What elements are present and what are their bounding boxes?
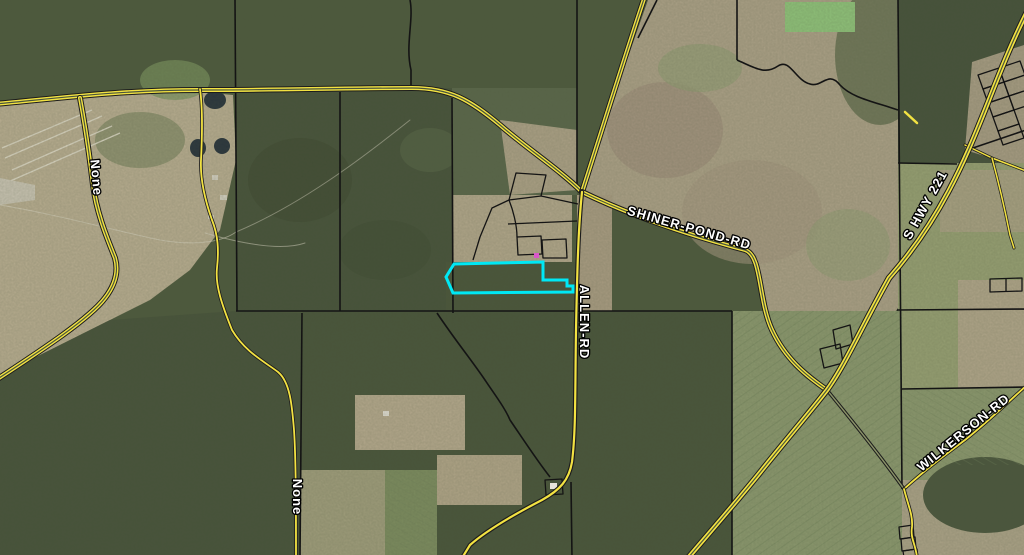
label-none-south: None — [290, 479, 305, 516]
aerial-map-canvas[interactable]: SHINER-POND-RD ALLEN-RD S HWY 221 WILKER… — [0, 0, 1024, 555]
label-allen-rd: ALLEN-RD — [577, 285, 592, 359]
label-none-west: None — [87, 159, 105, 197]
aerial-terrain-layer — [0, 0, 1024, 555]
selection-point-marker — [534, 253, 539, 258]
parcel-map-viewport[interactable]: SHINER-POND-RD ALLEN-RD S HWY 221 WILKER… — [0, 0, 1024, 555]
aerial-noise-texture — [0, 0, 1024, 555]
